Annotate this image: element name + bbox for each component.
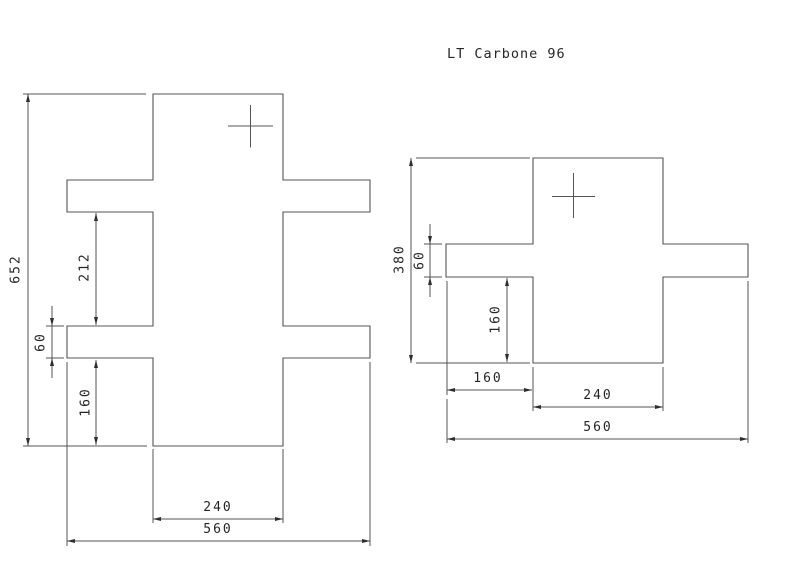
- dimension-label: 240: [583, 388, 612, 403]
- dimension-label: 380: [393, 244, 408, 273]
- dimension-arrowhead: [655, 405, 663, 409]
- dimension-arrowhead: [524, 388, 532, 392]
- dimension-arrowhead: [447, 388, 455, 392]
- dimension-arrowhead: [94, 213, 98, 221]
- dimension-arrowhead: [94, 437, 98, 445]
- dim-arm-gap-212: 212: [78, 213, 99, 325]
- dimension-arrowhead: [740, 437, 748, 441]
- dim-bar-width-240: 240: [533, 367, 663, 411]
- dimension-arrowhead: [533, 405, 541, 409]
- dimension-arrowhead: [26, 438, 30, 446]
- dimension-label: 60: [413, 250, 428, 270]
- dimension-arrowhead: [94, 317, 98, 325]
- dimension-arrowhead: [428, 277, 432, 285]
- dimension-label: 60: [34, 332, 49, 352]
- dimension-arrowhead: [50, 358, 54, 366]
- dimension-arrowhead: [362, 539, 370, 543]
- dim-arm-length-160: 160: [447, 281, 533, 411]
- drawing-title: LT Carbone 96: [447, 46, 566, 62]
- dimension-label: 160: [79, 387, 94, 416]
- dimension-arrowhead: [409, 355, 413, 363]
- dimension-arrowhead: [26, 94, 30, 102]
- dimension-label: 652: [9, 254, 24, 283]
- dimension-arrowhead: [50, 318, 54, 326]
- part-view-right: 38060160160240560: [393, 158, 749, 443]
- dimension-arrowhead: [428, 236, 432, 244]
- dimension-label: 560: [203, 522, 232, 537]
- dim-bar-width-240: 240: [153, 449, 283, 523]
- registration-cross-icon: [552, 173, 595, 218]
- part-view-left-outline: [67, 94, 370, 446]
- dim-arm-thickness-60: 60: [413, 224, 443, 297]
- dimension-label: 560: [583, 420, 612, 435]
- dimension-arrowhead: [505, 354, 509, 362]
- dimension-arrowhead: [153, 517, 161, 521]
- dim-notch-height-160: 160: [489, 278, 510, 362]
- registration-cross-icon: [228, 105, 273, 148]
- dimension-arrowhead: [94, 360, 98, 368]
- dim-overall-width-560: 560: [67, 362, 370, 546]
- dimension-label: 212: [78, 252, 93, 281]
- dimension-arrowhead: [409, 158, 413, 166]
- dimension-arrowhead: [447, 437, 455, 441]
- dimension-arrowhead: [505, 278, 509, 286]
- part-view-left: 65221260160240560: [9, 94, 371, 546]
- dimension-label: 160: [489, 304, 504, 333]
- dimension-label: 240: [203, 500, 232, 515]
- cad-drawing-canvas: LT Carbone 96 65221260160240560380601601…: [0, 0, 800, 565]
- dim-bottom-leg-160: 160: [79, 360, 99, 445]
- dimension-label: 160: [473, 371, 502, 386]
- dimension-arrowhead: [67, 539, 75, 543]
- dimension-arrowhead: [275, 517, 283, 521]
- dim-arm-thickness-60: 60: [34, 306, 65, 378]
